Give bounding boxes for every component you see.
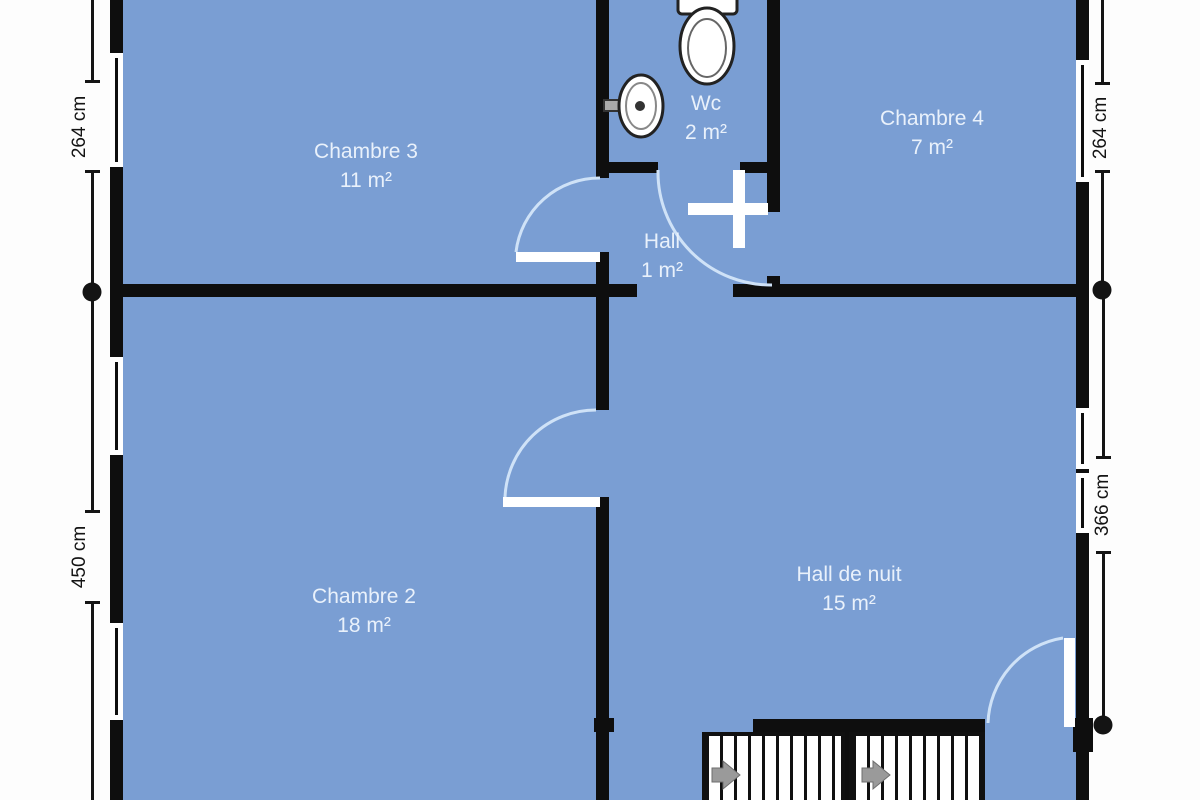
- room-label-chambre4: Chambre 4 7 m²: [880, 104, 984, 162]
- room-label-chambre3: Chambre 3 11 m²: [314, 137, 418, 195]
- dim-line: [91, 604, 94, 800]
- room-label-wc: Wc 2 m²: [685, 89, 727, 147]
- door-leaf-chambre2: [503, 497, 600, 507]
- dim-tick: [1095, 82, 1110, 85]
- floor-plan: Chambre 3 11 m² Wc 2 m² Chambre 4 7 m² H…: [0, 0, 1200, 800]
- dim-tick: [85, 510, 100, 513]
- room-name: Chambre 4: [880, 104, 984, 133]
- stair-arrow-right-icon: [862, 761, 890, 789]
- room-area: 11 m²: [314, 166, 418, 195]
- room-area: 7 m²: [880, 133, 984, 162]
- room-name: Hall: [641, 227, 683, 256]
- dim-line: [91, 292, 94, 512]
- dim-line: [1101, 0, 1104, 84]
- dim-line: [91, 173, 94, 292]
- stair-arrow-left-icon: [712, 761, 740, 789]
- plan-symbols: [0, 0, 1200, 800]
- toilet-bowl-inner-icon: [688, 19, 726, 77]
- dim-tick: [1096, 456, 1111, 459]
- cross-symbol-h: [688, 203, 768, 215]
- dim-label-right-top: 264 cm: [1090, 97, 1112, 159]
- dim-line: [91, 0, 94, 82]
- dim-label-left-bottom: 450 cm: [69, 526, 91, 588]
- room-area: 18 m²: [312, 611, 416, 640]
- dim-tick: [85, 80, 100, 83]
- door-leaf-bottom-right: [1064, 638, 1075, 727]
- room-area: 1 m²: [641, 256, 683, 285]
- dim-label-left-top: 264 cm: [69, 96, 91, 158]
- room-label-hall: Hall 1 m²: [641, 227, 683, 285]
- room-label-hall-de-nuit: Hall de nuit 15 m²: [796, 560, 901, 618]
- room-name: Wc: [685, 89, 727, 118]
- dim-line: [1102, 554, 1105, 725]
- door-leaf-chambre3: [516, 252, 600, 262]
- room-name: Chambre 2: [312, 582, 416, 611]
- cross-symbol-v: [733, 170, 745, 248]
- room-name: Hall de nuit: [796, 560, 901, 589]
- room-area: 15 m²: [796, 589, 901, 618]
- dim-junction-dot: [1094, 716, 1113, 735]
- dim-label-right-bottom: 366 cm: [1092, 474, 1114, 536]
- door-arc-bottom-right: [988, 638, 1063, 723]
- door-arc-chambre3: [516, 178, 600, 252]
- dim-line: [1101, 173, 1104, 290]
- door-arc-chambre2: [505, 410, 596, 497]
- room-label-chambre2: Chambre 2 18 m²: [312, 582, 416, 640]
- sink-drain-icon: [635, 101, 645, 111]
- room-name: Chambre 3: [314, 137, 418, 166]
- dim-line: [1102, 292, 1105, 458]
- room-area: 2 m²: [685, 118, 727, 147]
